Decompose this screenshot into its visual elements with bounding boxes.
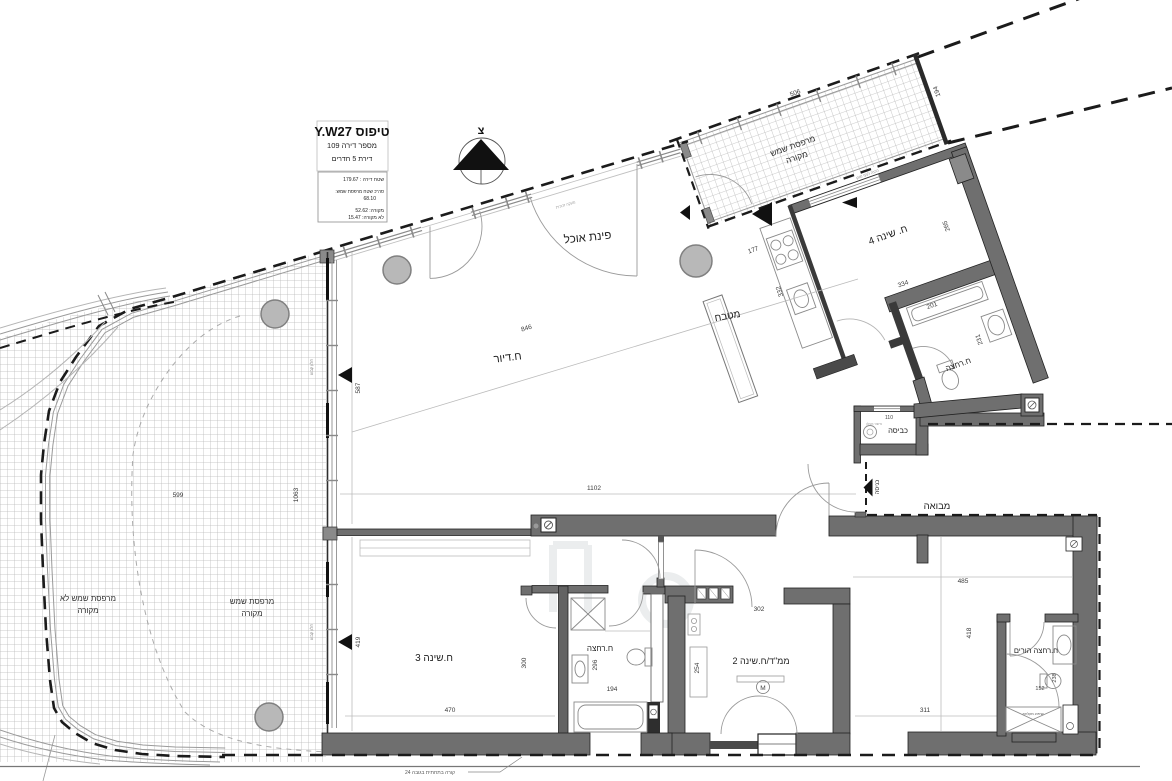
svg-text:418: 418 [966, 627, 973, 638]
svg-text:לא מקורה: 15.47: לא מקורה: 15.47 [348, 214, 384, 221]
svg-text:צ: צ [478, 125, 485, 137]
svg-text:1102: 1102 [587, 485, 601, 492]
svg-text:1063: 1063 [293, 487, 300, 502]
svg-text:300: 300 [521, 657, 528, 668]
svg-text:311: 311 [920, 707, 931, 714]
svg-text:מרפסת שמש: מרפסת שמש [230, 597, 274, 606]
svg-text:152: 152 [1035, 686, 1044, 692]
svg-text:מבואה: מבואה [924, 501, 951, 512]
svg-text:ח.רחצה: ח.רחצה [587, 644, 613, 653]
svg-text:מקורה: מקורה [77, 606, 98, 615]
svg-text:מספר דירה 109: מספר דירה 109 [327, 141, 377, 150]
svg-text:דירת 5 חדרים: דירת 5 חדרים [332, 156, 373, 163]
svg-text:מרפסת שמש לא: מרפסת שמש לא [60, 594, 116, 603]
svg-text:194: 194 [607, 686, 618, 693]
svg-text:587: 587 [355, 382, 362, 393]
svg-text:419: 419 [355, 636, 362, 647]
svg-text:מקורה: מקורה [241, 609, 262, 618]
svg-text:כניסה: כניסה [875, 480, 881, 495]
svg-text:ממ"ד/ח.שינה 2: ממ"ד/ח.שינה 2 [732, 656, 789, 666]
svg-text:238: 238 [1052, 673, 1058, 682]
svg-text:חלון קבוע: חלון קבוע [309, 624, 314, 640]
svg-text:סה"כ שטח מרפסת שמש:: סה"כ שטח מרפסת שמש: [335, 189, 384, 194]
svg-text:חלון קבוע: חלון קבוע [309, 359, 314, 375]
svg-text:כביסה: כביסה [888, 426, 908, 435]
svg-text:טיפוס Y.W27: טיפוס Y.W27 [314, 124, 389, 139]
svg-text:אישור מעלון: אישור מעלון [866, 422, 882, 426]
svg-text:470: 470 [445, 707, 456, 714]
svg-text:254: 254 [694, 662, 701, 673]
svg-text:M: M [760, 685, 765, 692]
svg-text:ח.רחצה הורים: ח.רחצה הורים [1014, 646, 1058, 655]
svg-text:302: 302 [754, 606, 765, 613]
svg-text:68.10: 68.10 [363, 196, 376, 202]
svg-text:שיפוע מקלחת: שיפוע מקלחת [1023, 712, 1044, 716]
svg-text:296: 296 [592, 659, 599, 670]
svg-text:24 קורה בתחתית בגובה: 24 קורה בתחתית בגובה [405, 770, 455, 776]
svg-text:מקורה: 52.62: מקורה: 52.62 [355, 208, 384, 214]
svg-text:ח.שינה 3: ח.שינה 3 [415, 653, 453, 664]
svg-text:110: 110 [885, 415, 893, 421]
svg-text:485: 485 [958, 578, 969, 585]
svg-text:599: 599 [173, 492, 184, 499]
svg-text:שטח דירה : 179.67: שטח דירה : 179.67 [343, 177, 384, 183]
